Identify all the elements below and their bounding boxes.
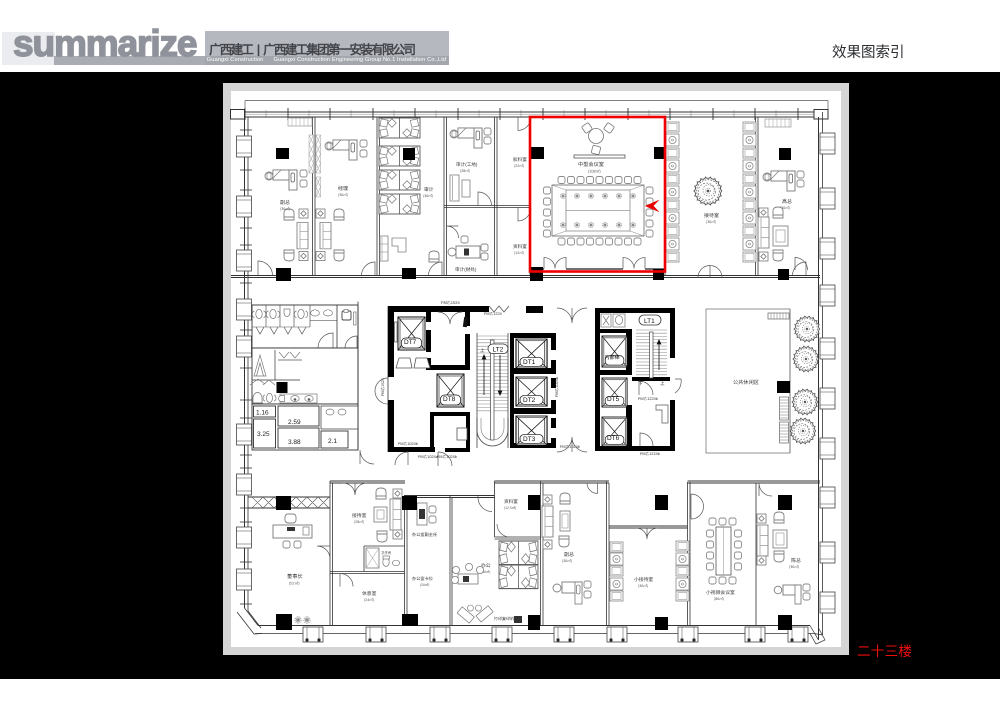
svg-text:资料室: 资料室 — [504, 499, 518, 504]
svg-text:内部梯: 内部梯 — [605, 354, 620, 361]
svg-text:胶料室: 胶料室 — [513, 157, 527, 162]
svg-text:经理: 经理 — [338, 185, 348, 192]
svg-text:审计: 审计 — [424, 186, 434, 193]
svg-text:(36㎡): (36㎡) — [280, 206, 290, 211]
svg-text:LT1: LT1 — [644, 318, 655, 325]
svg-text:高总: 高总 — [782, 198, 792, 205]
svg-text:FM乙1224: FM乙1224 — [484, 312, 502, 316]
svg-text:FM乙1024a: FM乙1024a — [418, 455, 439, 459]
svg-text:卫生间: 卫生间 — [381, 551, 392, 555]
svg-text:FM乙1024b: FM乙1024b — [555, 377, 559, 397]
svg-text:DT7: DT7 — [404, 339, 417, 346]
svg-text:小视频会议室: 小视频会议室 — [706, 589, 735, 596]
svg-text:(30㎡): (30㎡) — [338, 192, 348, 197]
svg-text:(30㎡): (30㎡) — [423, 193, 433, 198]
svg-text:上: 上 — [480, 348, 485, 353]
svg-text:DT3: DT3 — [523, 436, 536, 443]
svg-text:(12.5㎡): (12.5㎡) — [504, 506, 516, 510]
svg-text:DT5: DT5 — [607, 396, 620, 403]
svg-text:2.59: 2.59 — [288, 419, 301, 426]
svg-text:审计(财处): 审计(财处) — [455, 267, 477, 272]
svg-text:陈总: 陈总 — [791, 557, 801, 564]
svg-text:小接待室: 小接待室 — [634, 576, 653, 583]
svg-text:DT8: DT8 — [443, 396, 456, 403]
svg-text:公共休闲区: 公共休闲区 — [733, 379, 759, 386]
svg-text:(108㎡): (108㎡) — [588, 169, 601, 174]
svg-text:(52㎡): (52㎡) — [289, 581, 300, 586]
svg-text:办公室副主任: 办公室副主任 — [412, 532, 438, 537]
svg-text:办公室卡位: 办公室卡位 — [412, 576, 433, 581]
svg-text:DT6: DT6 — [607, 435, 620, 442]
svg-text:(36㎡): (36㎡) — [789, 564, 799, 569]
svg-text:接待室: 接待室 — [704, 212, 719, 219]
svg-text:(12㎡): (12㎡) — [514, 250, 524, 255]
svg-text:中型会议室: 中型会议室 — [578, 161, 604, 168]
svg-text:3.88: 3.88 — [288, 439, 301, 446]
svg-text:(28㎡): (28㎡) — [354, 519, 364, 524]
svg-text:FM乙1024b: FM乙1024b — [398, 442, 418, 446]
svg-text:董事长: 董事长 — [287, 573, 303, 580]
svg-text:(20㎡): (20㎡) — [420, 583, 429, 587]
svg-text:FM乙1524: FM乙1524 — [441, 300, 460, 305]
svg-text:DT1: DT1 — [523, 359, 536, 366]
svg-text:FM乙1024b: FM乙1024b — [437, 455, 457, 459]
svg-text:接待室: 接待室 — [352, 512, 367, 519]
svg-text:资料室: 资料室 — [513, 244, 527, 249]
svg-text:FM乙1224b: FM乙1224b — [640, 452, 660, 456]
svg-text:(36㎡): (36㎡) — [638, 583, 648, 588]
svg-text:(30㎡): (30㎡) — [562, 558, 572, 563]
svg-text:(86㎡): (86㎡) — [714, 596, 724, 601]
svg-text:休息室: 休息室 — [362, 590, 377, 597]
svg-text:副总: 副总 — [280, 199, 290, 206]
svg-text:打印复印机: 打印复印机 — [494, 616, 514, 621]
svg-text:审计(工地): 审计(工地) — [456, 162, 478, 167]
svg-text:LT2: LT2 — [493, 347, 504, 354]
svg-text:(22㎡): (22㎡) — [514, 163, 524, 168]
svg-text:2.1: 2.1 — [328, 438, 337, 445]
svg-text:1.16: 1.16 — [256, 410, 269, 417]
svg-text:(28㎡): (28㎡) — [460, 168, 470, 173]
svg-text:(36㎡): (36㎡) — [706, 219, 716, 224]
svg-text:(24㎡): (24㎡) — [364, 597, 374, 602]
svg-text:副总: 副总 — [564, 551, 574, 558]
svg-text:上: 上 — [660, 381, 665, 386]
svg-text:DT2: DT2 — [523, 397, 536, 404]
svg-text:FM乙1224b: FM乙1224b — [638, 397, 658, 401]
svg-text:3.25: 3.25 — [257, 431, 270, 438]
svg-text:FM乙1524: FM乙1524 — [381, 378, 385, 396]
